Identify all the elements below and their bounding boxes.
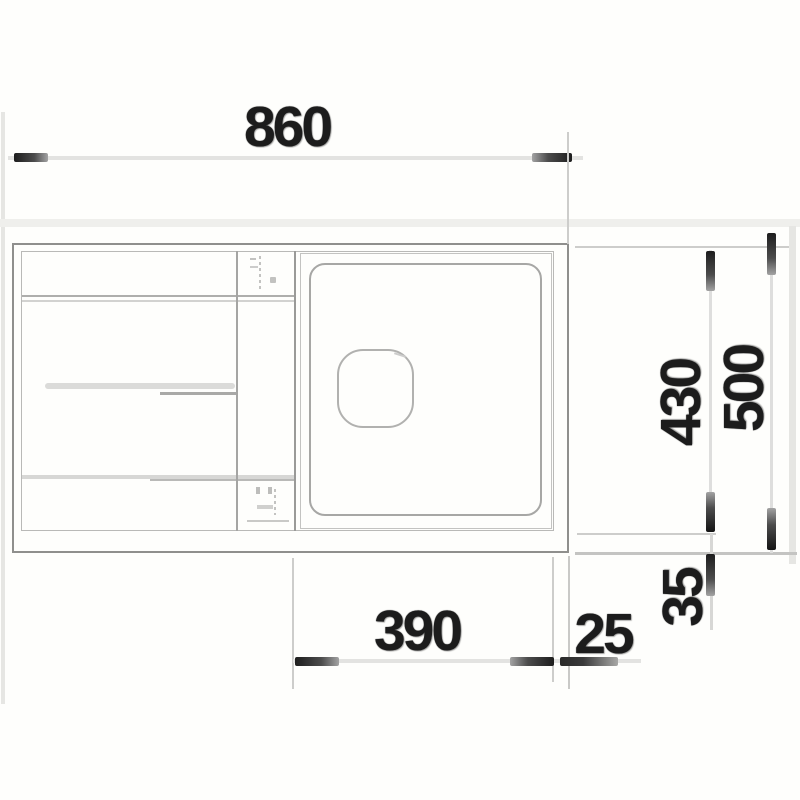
divider-left-line (236, 251, 238, 531)
dim-label-overall-width: 860 (222, 100, 352, 154)
dim-label-bowl-depth: 430 (651, 337, 711, 469)
dim-arrow-430-bottom (706, 492, 715, 532)
dim-arrow-390-right (510, 657, 554, 666)
tap-hole-dot (270, 277, 276, 283)
divider-right-line (294, 251, 296, 531)
page-edge-left (1, 112, 5, 704)
sink-technical-drawing: 860 430 500 35 390 25 (0, 0, 800, 800)
knob-centerline-icon (274, 489, 276, 515)
knob-mark-1 (256, 487, 260, 494)
ext-line-860-right (567, 132, 569, 244)
drainboard-top-line-secondary (22, 300, 295, 302)
countertop-shadow-line (0, 219, 800, 227)
dim-arrow-500-bottom (767, 508, 776, 550)
knob-box-line (247, 520, 289, 522)
dim-arrow-860-left (14, 153, 48, 162)
tap-hole-marks-bottom (240, 484, 294, 528)
knob-mark-2 (268, 487, 272, 494)
dim-label-bowl-edge-gap: 25 (560, 607, 646, 661)
tap-hole-centerline-icon (259, 256, 261, 292)
knob-smudge (257, 505, 273, 509)
dim-arrow-390-left (295, 657, 339, 666)
drain-groove-major (45, 383, 235, 389)
drainboard-bottom-line (150, 479, 296, 481)
dim-arrow-500-top (767, 233, 776, 275)
tap-hole-marks-top (240, 252, 294, 298)
dim-arrow-860-right (532, 153, 572, 162)
tap-hole-tick-2 (250, 266, 258, 268)
tap-hole-tick-1 (250, 258, 256, 260)
dim-label-bowl-front-gap: 35 (653, 548, 713, 648)
drain-hole (337, 349, 414, 428)
drain-groove-minor (160, 392, 238, 395)
page-edge-right (789, 226, 796, 564)
dim-label-overall-depth: 500 (714, 323, 774, 455)
dim-arrow-430-top (706, 251, 715, 291)
ext-line-top-right (575, 246, 789, 248)
ext-line-390-left (292, 558, 294, 689)
ext-line-bowl-bottom-right (577, 533, 716, 535)
dim-label-bowl-width: 390 (352, 604, 482, 658)
